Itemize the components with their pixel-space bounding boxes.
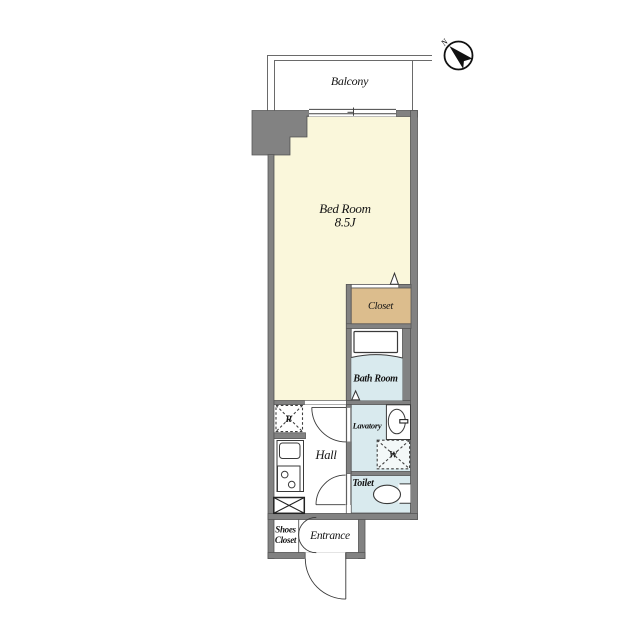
- svg-text:W: W: [389, 451, 398, 461]
- svg-text:Hall: Hall: [314, 448, 337, 462]
- svg-text:Entrance: Entrance: [309, 530, 350, 542]
- svg-text:Closet: Closet: [368, 301, 394, 312]
- svg-text:R: R: [284, 415, 291, 425]
- svg-text:Balcony: Balcony: [331, 74, 369, 88]
- svg-text:Lavatory: Lavatory: [352, 421, 382, 431]
- svg-text:Shoes: Shoes: [275, 525, 296, 535]
- svg-text:Closet: Closet: [275, 535, 297, 545]
- svg-text:Bath Room: Bath Room: [352, 374, 398, 385]
- svg-text:8.5J: 8.5J: [335, 214, 357, 229]
- svg-text:Toilet: Toilet: [352, 478, 375, 489]
